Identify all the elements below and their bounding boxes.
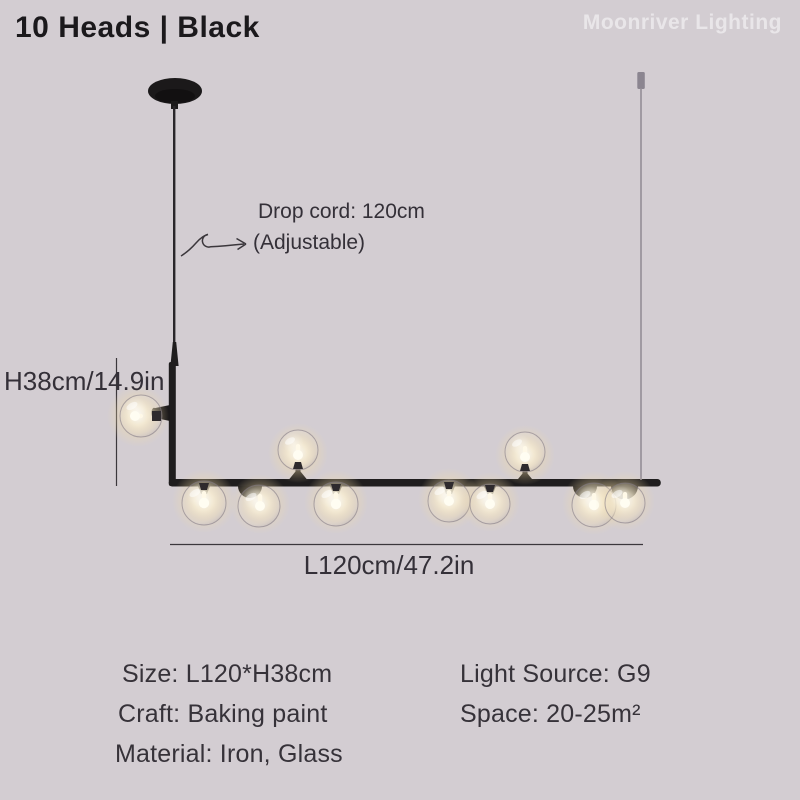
inner-socket (152, 411, 161, 421)
drop-cord-label: Drop cord: 120cm (258, 200, 425, 224)
wire-fitting (637, 72, 645, 89)
fixture-structure (148, 72, 661, 487)
squiggle-arrow (181, 235, 244, 257)
spec-space: Space: 20-25m² (460, 700, 641, 729)
spec-material: Material: Iron, Glass (115, 740, 343, 769)
spec-light-source: Light Source: G9 (460, 660, 651, 689)
glass-globe (460, 472, 520, 532)
glass-globe (268, 423, 328, 483)
bulb-core (130, 411, 140, 421)
drop-cord (173, 106, 175, 346)
bulb-core (255, 501, 265, 511)
bulb-core (520, 452, 530, 462)
bulb-core (485, 499, 495, 509)
length-dimension-label: L120cm/47.2in (276, 550, 502, 581)
lamp-diagram (0, 0, 800, 800)
suspension-wire (640, 88, 642, 480)
product-image: 10 Heads | Black Moonriver Lighting (0, 0, 800, 800)
drop-cord-note: (Adjustable) (253, 231, 365, 255)
spec-size: Size: L120*H38cm (122, 660, 332, 689)
canopy-underside (155, 89, 195, 103)
height-dimension-label: H38cm/14.9in (4, 366, 164, 397)
bulb-core (331, 499, 341, 509)
glass-globe (230, 474, 290, 534)
bulb-core (620, 498, 630, 508)
bulb-core (199, 498, 209, 508)
glass-globe (595, 471, 655, 531)
glass-globe (304, 470, 368, 534)
glass-globe (172, 469, 236, 533)
vertical-stem (169, 362, 176, 486)
bulb-core (293, 450, 303, 460)
bulb-core (444, 496, 454, 506)
spec-craft: Craft: Baking paint (118, 700, 327, 729)
